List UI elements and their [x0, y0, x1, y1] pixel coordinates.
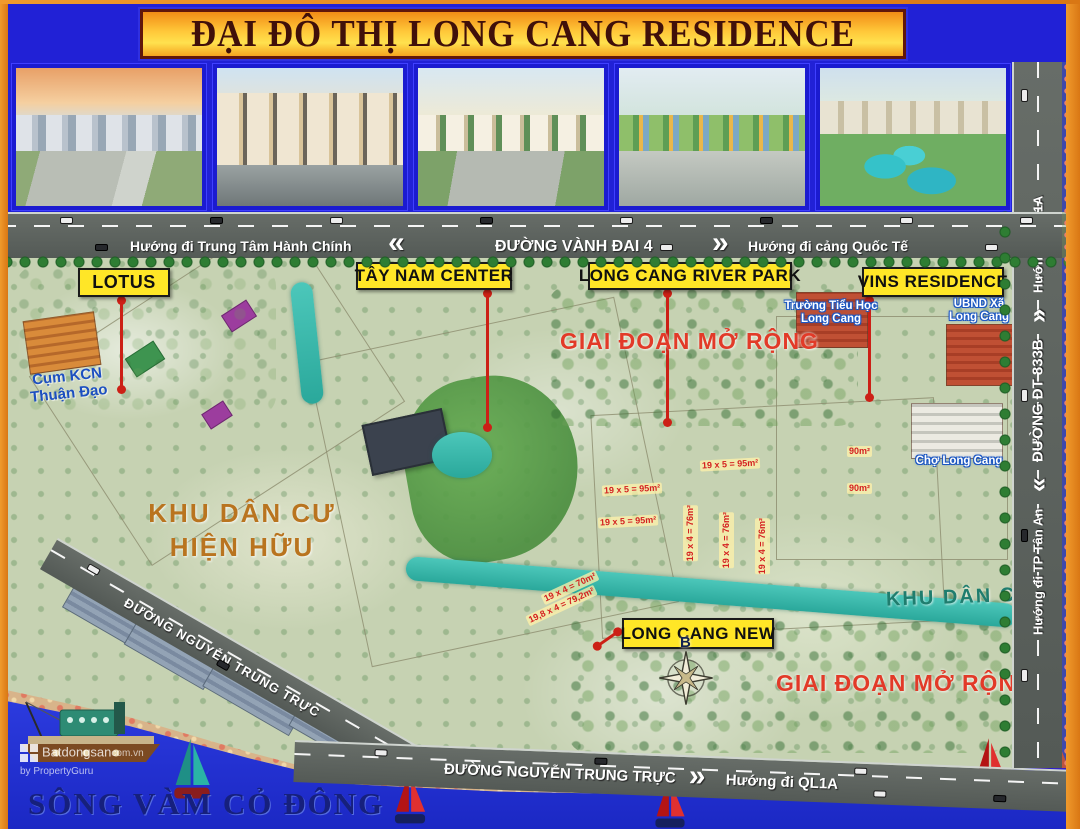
watermark-domain: com.vn [111, 748, 143, 759]
masterplan-poster: ĐẠI ĐÔ THỊ LONG CANG RESIDENCE Hướng đi … [0, 0, 1080, 829]
gallery-image-lagoon-park [816, 64, 1010, 210]
gallery-image-shophouse-corner [213, 64, 407, 210]
school-label: Trường Tiểu Học Long Cang [764, 300, 898, 326]
road-hint-international-port: Hướng đi cảng Quốc Tế [748, 238, 908, 254]
poster-title: ĐẠI ĐÔ THỊ LONG CANG RESIDENCE [191, 12, 855, 55]
card-art [217, 93, 403, 165]
card-art [820, 101, 1006, 137]
label-pointer [666, 293, 669, 423]
zone-label-lotus: LOTUS [78, 268, 170, 297]
zone-label-long-cang-new: LONG CANG NEW [622, 618, 774, 649]
car-icon [210, 217, 223, 224]
card-art [418, 151, 604, 206]
car-icon [1020, 217, 1033, 224]
card-art [217, 165, 403, 206]
masterplan-map: LOTUS TÂY NAM CENTER LONG CANG RIVER PAR… [8, 258, 1012, 770]
expansion-phase-label-top: GIAI ĐOẠN MỞ RỘNG [560, 328, 784, 355]
label-pointer [486, 293, 489, 428]
existing-residential-label: KHU DÂN CƯ HIỆN HỮU [136, 496, 348, 564]
watermark: Batdongsancom.vn by PropertyGuru [20, 744, 144, 779]
gallery-image-aerial-entrance [12, 64, 206, 210]
compass-rose-icon [658, 650, 714, 706]
gallery-image-gateway-park [615, 64, 809, 210]
car-icon [594, 758, 607, 765]
car-icon [480, 217, 493, 224]
car-icon [760, 217, 773, 224]
car-icon [993, 795, 1006, 802]
road-vanh-dai-4: Hướng đi Trung Tâm Hành Chính « ĐƯỜNG VÀ… [0, 212, 1080, 258]
car-icon [873, 790, 886, 797]
school-label-line2: Long Cang [801, 313, 861, 325]
car-icon [86, 563, 101, 576]
chevron-left-icon: « [388, 230, 405, 256]
poster-frame-top [0, 0, 1080, 4]
car-icon [985, 244, 998, 251]
road-name-vanh-dai-4: ĐƯỜNG VÀNH ĐAI 4 [495, 238, 653, 256]
gallery-strip [12, 64, 1010, 210]
chevron-up-icon: » [1023, 309, 1054, 323]
road-dt-833b-labels: Hướng đi TP Tân An « ĐƯỜNG ĐT 833B » Hướ… [1014, 62, 1062, 768]
card-art [619, 151, 805, 206]
market-label: Chợ Long Cang [903, 455, 1012, 468]
header-band: ĐẠI ĐÔ THỊ LONG CANG RESIDENCE [8, 4, 1066, 62]
car-icon [1021, 389, 1028, 402]
watermark-logo-icon [20, 744, 38, 762]
chevron-down-icon: « [1023, 478, 1054, 492]
compass-north-label: B [680, 634, 691, 651]
car-icon [900, 217, 913, 224]
card-art [16, 151, 202, 206]
expansion-phase-label-bottom: GIAI ĐOẠN MỞ RỘNG [776, 670, 1002, 697]
road-hint-admin-center: Hướng đi Trung Tâm Hành Chính [130, 238, 352, 254]
road-centerline [0, 225, 1080, 227]
car-icon [1021, 669, 1028, 682]
car-icon [95, 244, 108, 251]
car-icon [374, 749, 387, 756]
road-dt-833b: Hướng đi TP Tân An « ĐƯỜNG ĐT 833B » Hướ… [1012, 62, 1062, 768]
car-icon [60, 217, 73, 224]
existing-residential-line1: KHU DÂN CƯ [148, 498, 335, 528]
poster-frame-left [0, 0, 8, 829]
car-icon [620, 217, 633, 224]
car-icon [854, 767, 867, 774]
watermark-byline: by PropertyGuru [20, 766, 93, 777]
card-art [820, 134, 1006, 206]
tree-row [0, 256, 1080, 269]
car-icon [330, 217, 343, 224]
title-banner: ĐẠI ĐÔ THỊ LONG CANG RESIDENCE [140, 9, 906, 59]
residential-east-label: KHU DÂN CƯ [886, 583, 1012, 611]
road-name-dt-833b: ĐƯỜNG ĐT 833B [1030, 339, 1047, 462]
chevron-right-icon: » [712, 230, 729, 256]
road-hint-ql1a: Hướng đi QL1A [725, 772, 838, 793]
gallery-image-streetscape [414, 64, 608, 210]
car-icon [1021, 89, 1028, 102]
road-name-nguyen-trung-truc: ĐƯỜNG NGUYỄN TRUNG TRỰC [444, 761, 676, 787]
road-hint-tan-an: Hướng đi TP Tân An [1031, 508, 1046, 634]
central-pond [432, 432, 492, 478]
watermark-brand: Batdongsan [42, 744, 111, 759]
existing-residential-line2: HIỆN HỮU [170, 532, 314, 562]
market-building [911, 403, 1003, 459]
chevron-right-icon: » [688, 763, 706, 790]
zone-label-vins-residence: VINS RESIDENCE [862, 267, 1004, 297]
car-icon [660, 244, 673, 251]
car-icon [1021, 529, 1028, 542]
poster-frame-right [1066, 0, 1080, 829]
river-name-label: SÔNG VÀM CỎ ĐÔNG [28, 786, 384, 822]
ubnd-label-line1: UBND Xã [954, 298, 1004, 310]
school-label-line1: Trường Tiểu Học [785, 300, 878, 312]
